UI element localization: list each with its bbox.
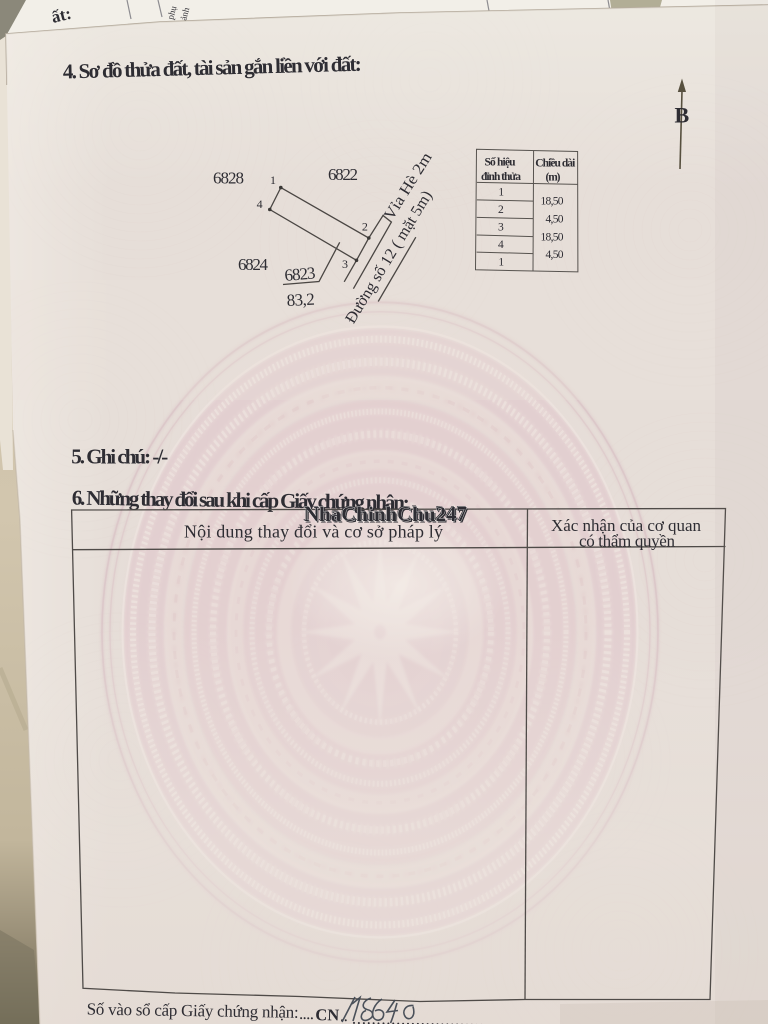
svg-text:có thẩm quyền: có thẩm quyền	[579, 531, 676, 550]
svg-text:6822: 6822	[328, 165, 358, 184]
svg-text:83,2: 83,2	[286, 290, 315, 310]
svg-text:18,50: 18,50	[541, 231, 564, 243]
svg-text:2: 2	[362, 220, 368, 234]
svg-text:đỉnh thửa: đỉnh thửa	[481, 171, 521, 183]
svg-text:NhaChinhChu247: NhaChinhChu247	[304, 502, 467, 526]
svg-text:..............................: ......................................	[352, 1009, 538, 1024]
svg-text:....: ....	[299, 1004, 314, 1023]
svg-text:4,50: 4,50	[546, 213, 564, 225]
svg-text:18,50: 18,50	[541, 196, 564, 208]
svg-text:3: 3	[342, 257, 348, 271]
svg-text:6824: 6824	[238, 255, 269, 274]
svg-text:(m): (m)	[546, 172, 561, 184]
svg-text:CN: CN	[315, 1005, 339, 1024]
svg-text:6823: 6823	[284, 263, 317, 285]
svg-text:B: B	[675, 103, 690, 128]
svg-text:Số hiệu: Số hiệu	[485, 155, 517, 168]
svg-text:4: 4	[498, 239, 504, 251]
svg-text:1: 1	[498, 186, 504, 198]
svg-text:6828: 6828	[213, 169, 244, 188]
svg-text:Số vào sổ cấp Giấy chứng nhận:: Số vào sổ cấp Giấy chứng nhận:	[87, 1000, 299, 1022]
svg-text:4: 4	[257, 197, 263, 211]
svg-text:1: 1	[270, 173, 276, 187]
svg-text:3: 3	[498, 222, 504, 234]
svg-text:5. Ghi chú: -/-: 5. Ghi chú: -/-	[71, 445, 168, 469]
svg-text:4,50: 4,50	[546, 249, 564, 261]
svg-text:2: 2	[498, 204, 504, 216]
svg-text:Chiều dài: Chiều dài	[535, 156, 576, 169]
svg-text:..: ..	[340, 1006, 348, 1024]
svg-text:1: 1	[498, 257, 504, 269]
